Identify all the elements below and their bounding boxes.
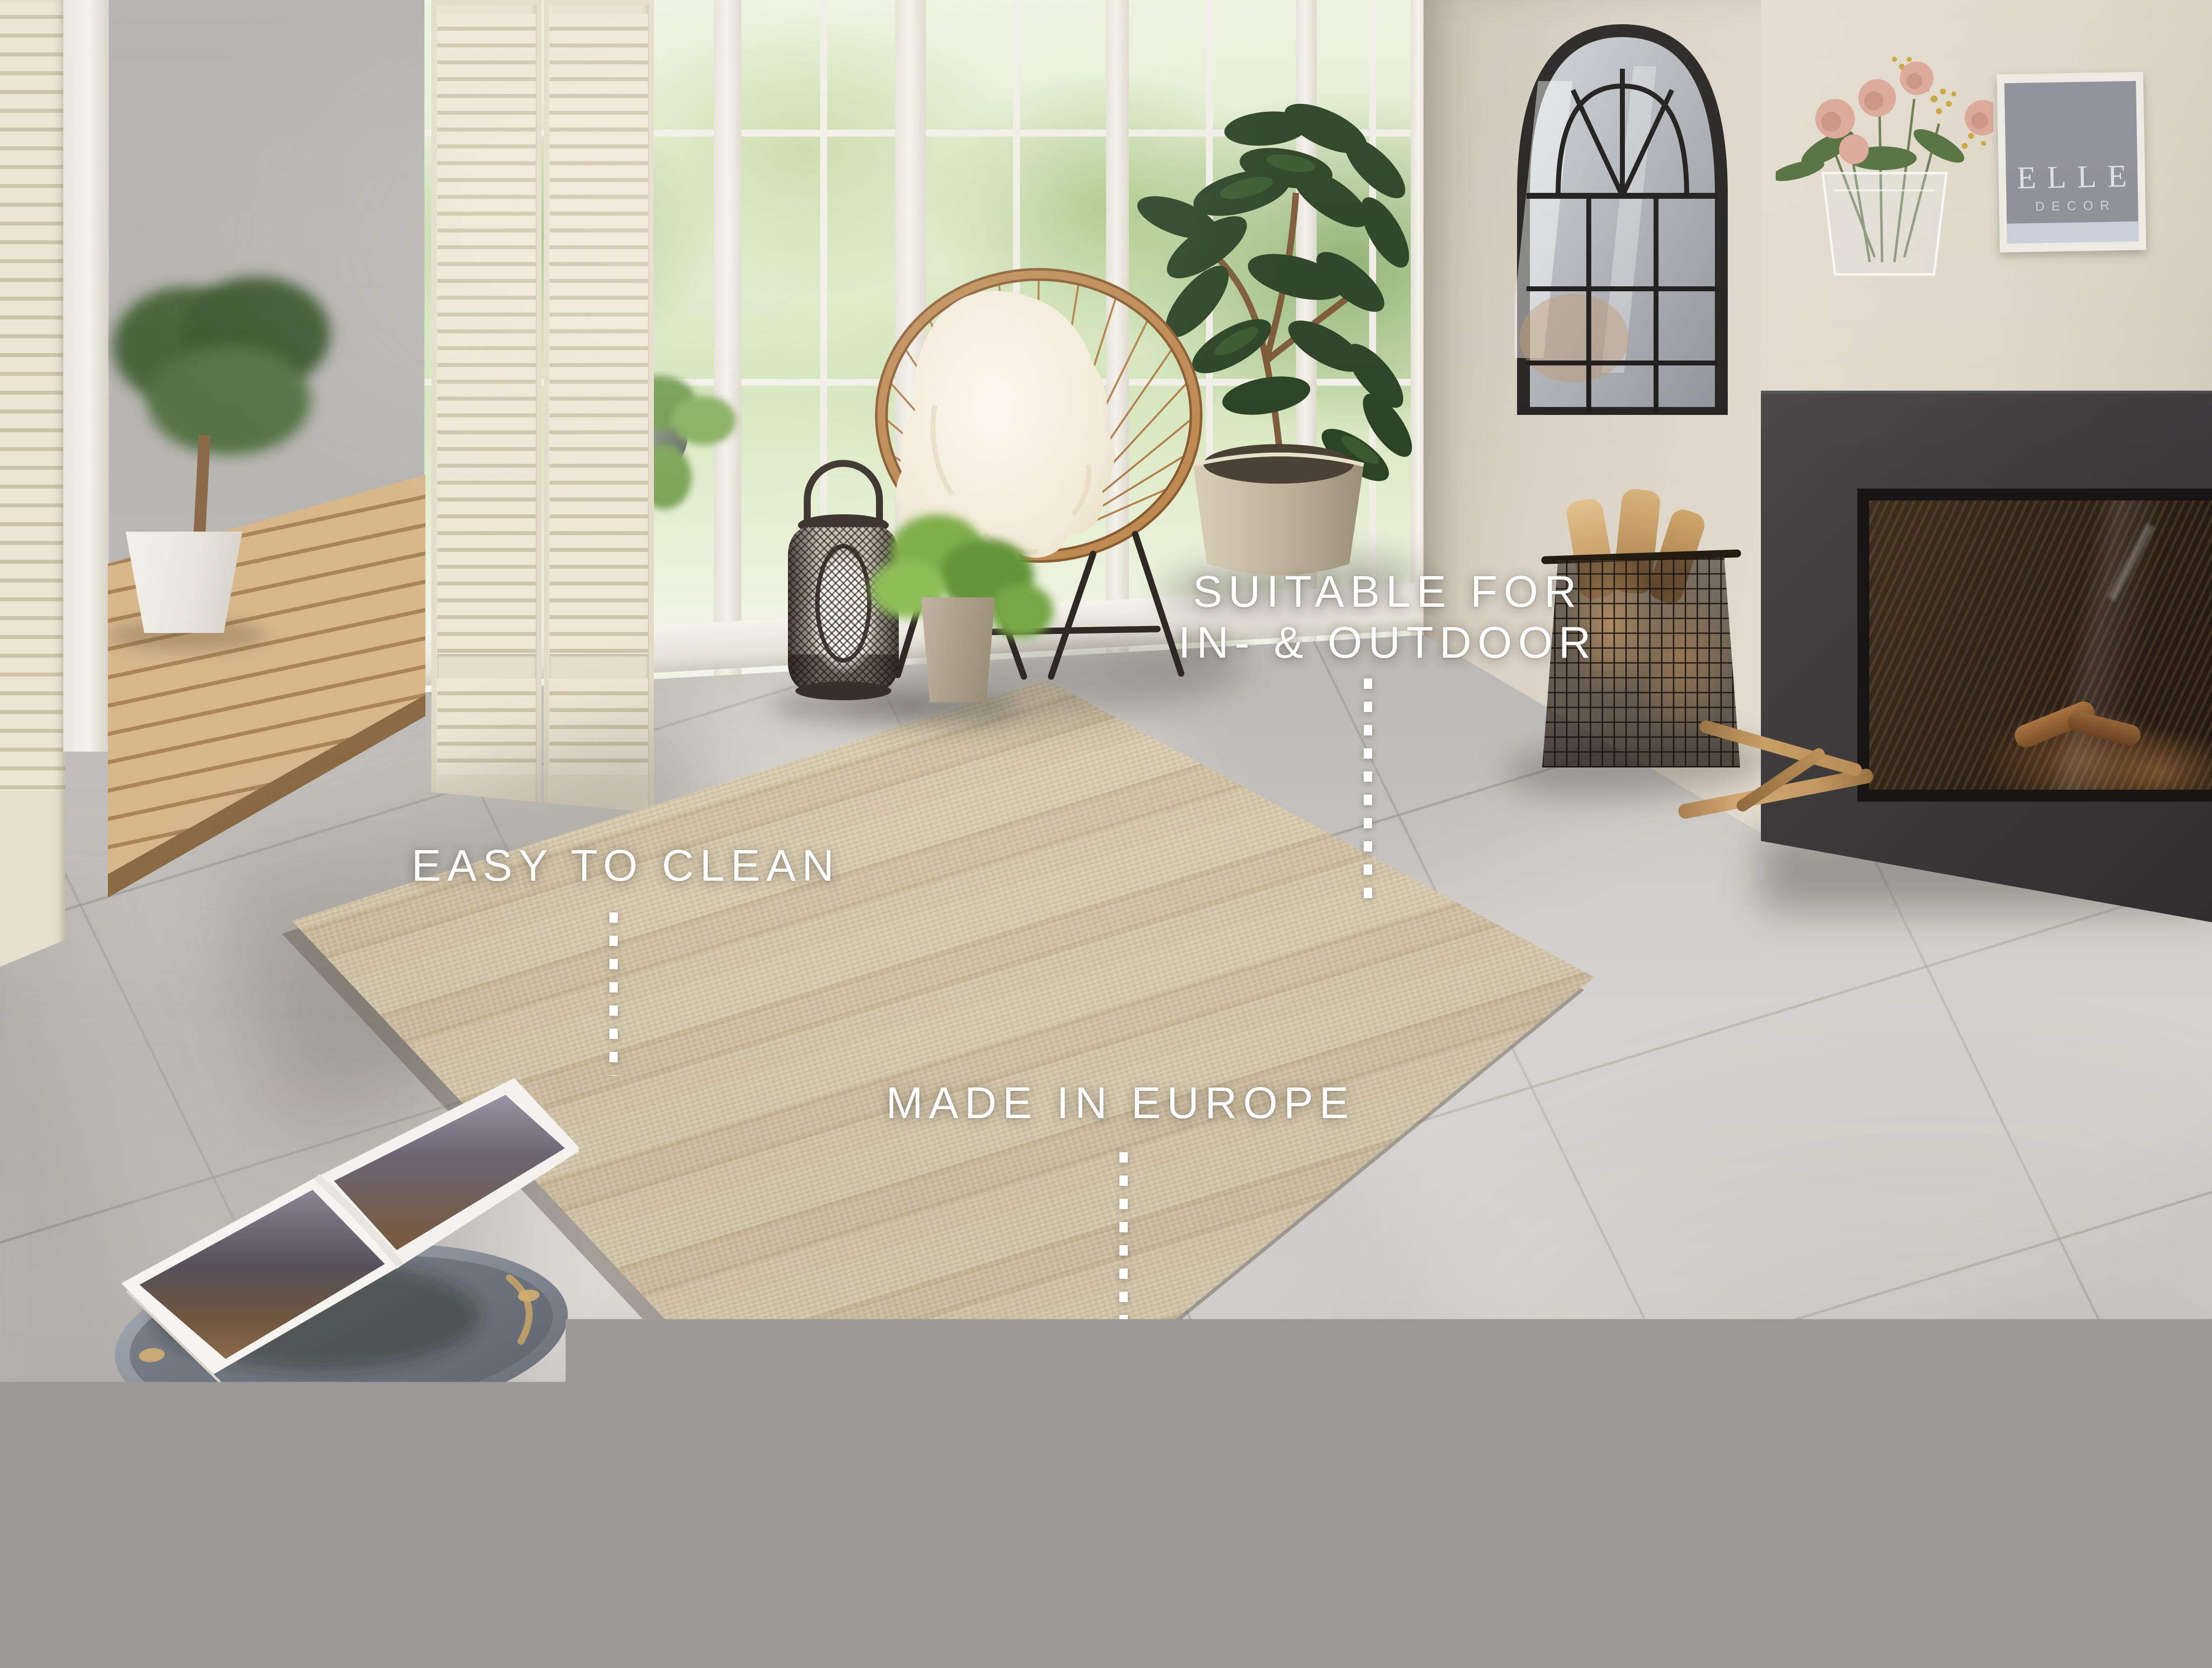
overlay-suitable-line1: SUITABLE FOR <box>1165 567 1610 618</box>
shutter-panel <box>544 0 654 821</box>
dotted-pointer-easy <box>609 912 618 1076</box>
decor-picture-frame: ELLE DECOR <box>1997 72 2146 252</box>
dotted-pointer-made <box>1119 1152 1128 1359</box>
fern-plant <box>989 584 1054 638</box>
poster-subtitle: DECOR <box>2035 197 2116 214</box>
overlay-easy-label: EASY TO CLEAN <box>391 841 861 892</box>
shutter-louvers <box>550 14 648 654</box>
poster-band <box>2007 222 2139 244</box>
shutter-panel <box>431 0 542 821</box>
lantern-candle-window <box>815 544 872 663</box>
shutter-louvers <box>437 14 536 654</box>
shutter-rail <box>437 654 536 678</box>
fireplace-window <box>1857 489 2212 802</box>
flower-vase <box>1776 25 1993 282</box>
wood-deck <box>108 0 425 905</box>
poster-title: ELLE <box>2017 158 2138 196</box>
glass-reflection <box>2107 523 2155 602</box>
dotted-pointer-suitable <box>1364 678 1372 911</box>
overlay-made-label: MADE IN EUROPE <box>885 1078 1355 1129</box>
shutter-louvers <box>437 678 536 775</box>
overlay-suitable-label: SUITABLE FOR IN- & OUTDOOR <box>1165 567 1610 668</box>
louvered-closet-shutter <box>0 0 65 967</box>
window-stile <box>714 0 741 692</box>
ivy-plant <box>672 396 736 445</box>
potted-tree-foliage <box>147 346 311 455</box>
door-jamb <box>63 0 109 752</box>
arched-window-mirror <box>1515 22 1730 415</box>
firewood-log <box>2066 709 2143 747</box>
poster: ELLE DECOR <box>2004 81 2139 244</box>
potted-tree-trunk <box>193 435 210 544</box>
living-room-photo: ELLE DECOR <box>0 0 2212 1668</box>
shutter-rail <box>550 654 648 678</box>
overlay-suitable-line2: IN- & OUTDOOR <box>1165 618 1610 669</box>
folding-shutter-divider <box>431 0 654 821</box>
open-doorway <box>108 0 425 905</box>
magazine-on-tray <box>84 1058 579 1434</box>
lantern-base <box>795 681 891 700</box>
